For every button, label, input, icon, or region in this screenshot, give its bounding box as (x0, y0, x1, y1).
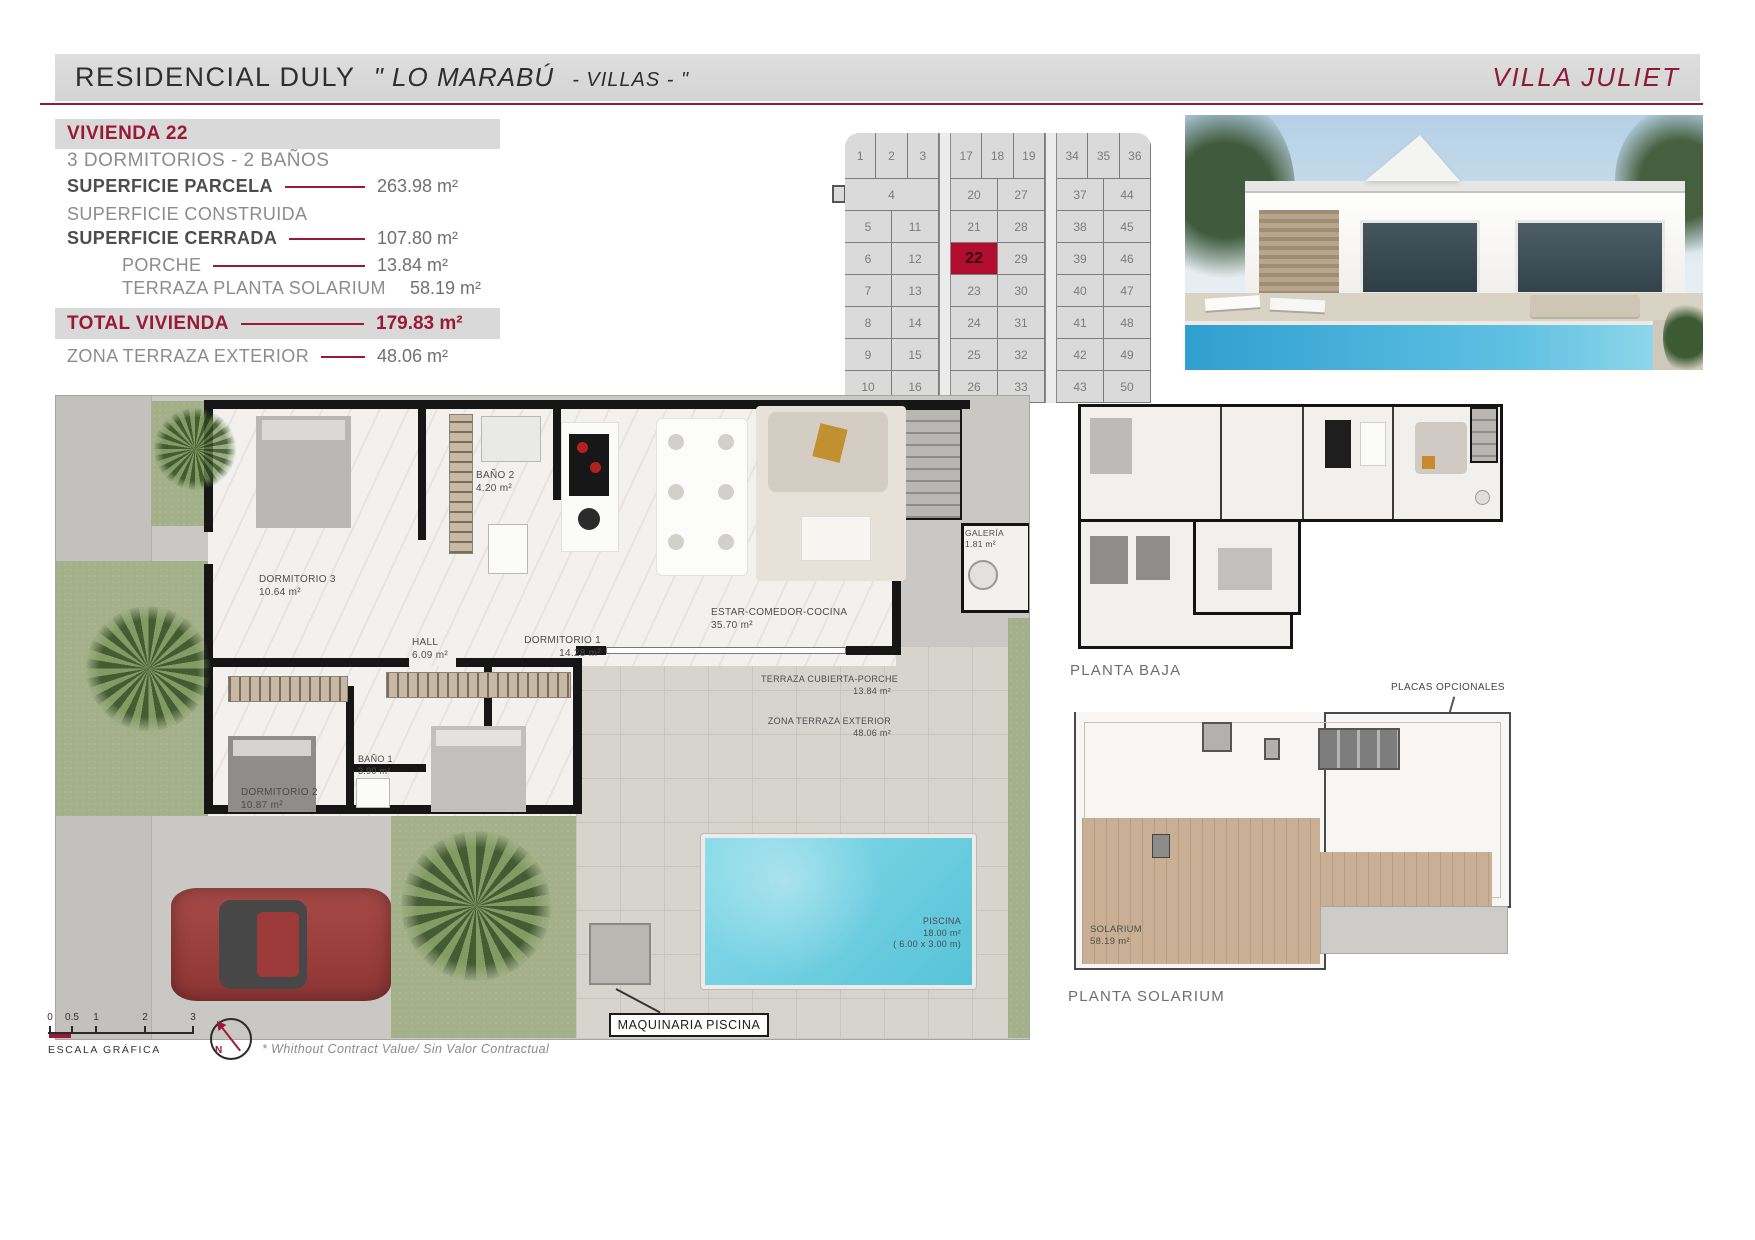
room-label-bano2: BAÑO 2 4.20 m² (476, 469, 514, 495)
spec-label: ZONA TERRAZA EXTERIOR (67, 346, 309, 367)
mini-bed (1218, 548, 1272, 590)
site-map-row: 2027 (951, 179, 1045, 211)
room-area: 18.00 m² (826, 928, 961, 940)
car-roof (257, 912, 299, 977)
leader-line (289, 238, 365, 240)
site-map-cell: 9 (845, 338, 892, 371)
solar-panels (1318, 728, 1400, 770)
scale-tick (144, 1026, 146, 1034)
site-map-cell: 49 (1103, 338, 1151, 371)
document-page: RESIDENCIAL DULY " LO MARABÚ - VILLAS - … (0, 0, 1755, 1240)
page-title: RESIDENCIAL DULY (75, 62, 356, 93)
spec-label: SUPERFICIE PARCELA (67, 176, 273, 197)
site-map-block: 12345116127138149151016 (845, 133, 939, 403)
wall-dorm2-bath1 (346, 686, 354, 814)
site-map-cell: 35 (1087, 133, 1119, 179)
spec-label: TERRAZA PLANTA SOLARIUM (122, 278, 386, 299)
site-map-cell: 4 (845, 178, 939, 211)
site-map-row: 2330 (951, 275, 1045, 307)
room-area: 6.09 m² (412, 649, 448, 662)
plate (718, 434, 734, 450)
site-map-row: 4249 (1057, 339, 1151, 371)
site-map-cell: 29 (997, 242, 1045, 275)
room-area: 48.06 m² (756, 728, 891, 740)
wardrobe-dormitorio2 (228, 676, 348, 702)
header-rule (40, 103, 1703, 105)
site-map-cell: 46 (1103, 242, 1151, 275)
mini-bed (1090, 536, 1128, 584)
room-label-terraza-porche: TERRAZA CUBIERTA-PORCHE 13.84 m² (761, 674, 891, 697)
site-map-cell: 36 (1119, 133, 1151, 179)
site-map-cell: 31 (997, 306, 1045, 339)
scale-tick-label: 2 (142, 1012, 148, 1023)
site-map-cell: 13 (891, 274, 939, 307)
site-map-row: 4148 (1057, 307, 1151, 339)
roof-hatch (1152, 834, 1170, 858)
room-area: 58.19 m² (1090, 936, 1142, 948)
vivienda-bar: VIVIENDA 22 (55, 119, 500, 149)
site-map-cell: 37 (1057, 178, 1104, 211)
site-map-cell: 28 (997, 210, 1045, 243)
site-map-cell: 34 (1057, 133, 1088, 179)
wall-wing-east (573, 658, 582, 814)
plate (718, 484, 734, 500)
villa-roof (1245, 181, 1685, 193)
total-row: TOTAL VIVIENDA 179.83 m² (67, 313, 488, 335)
mini-stairs (1470, 407, 1498, 463)
room-label-estar: ESTAR-COMEDOR-COCINA 35.70 m² (711, 606, 847, 632)
pool (701, 834, 976, 989)
spec-value: 13.84 m² (377, 255, 489, 276)
site-map-row: 2128 (951, 211, 1045, 243)
site-map-cell: 21 (951, 210, 998, 243)
room-name: ZONA TERRAZA EXTERIOR (768, 716, 891, 726)
compass: N (210, 1018, 252, 1060)
pool-equipment-pad (589, 923, 651, 985)
spec-row-construida: SUPERFICIE CONSTRUIDA (67, 204, 489, 225)
wall-west-mid (204, 564, 213, 624)
planta-baja-plan (1070, 398, 1515, 660)
room-area: 10.64 m² (259, 586, 336, 599)
pool-coping (1185, 321, 1655, 325)
spec-row-porche: PORCHE 13.84 m² (122, 255, 489, 276)
glass-window-left (1360, 220, 1480, 295)
outdoor-sofa (1530, 295, 1640, 317)
site-map-cell: 38 (1057, 210, 1104, 243)
leader-line (321, 356, 365, 358)
site-map-row: 2229 (951, 243, 1045, 275)
rooms-summary: 3 DORMITORIOS - 2 BAÑOS (67, 150, 329, 172)
site-map-cell: 42 (1057, 338, 1104, 371)
site-map-row: 2431 (951, 307, 1045, 339)
roof-vent (1264, 738, 1280, 760)
villa-name: VILLA JULIET (1492, 62, 1680, 93)
room-label-zona-terraza: ZONA TERRAZA EXTERIOR 48.06 m² (756, 716, 891, 739)
site-map-cell: 5 (845, 210, 892, 243)
room-label-dormitorio2: DORMITORIO 2 10.87 m² (241, 786, 318, 812)
maquinaria-label: MAQUINARIA PISCINA (618, 1018, 761, 1032)
spec-label: SUPERFICIE CERRADA (67, 228, 277, 249)
site-map-row: 4047 (1057, 275, 1151, 307)
spec-row-terraza-solarium: TERRAZA PLANTA SOLARIUM 58.19 m² (122, 278, 489, 299)
site-map-cell: 20 (951, 178, 998, 211)
exterior-stairs (904, 408, 962, 520)
bathroom1-sink (356, 778, 390, 808)
spec-value: 58.19 m² (410, 278, 489, 299)
scale-tick (95, 1026, 97, 1034)
maquinaria-label-box: MAQUINARIA PISCINA (609, 1013, 769, 1037)
contract-note: * Whithout Contract Value/ Sin Valor Con… (262, 1042, 549, 1056)
garden-strip-right (1008, 618, 1030, 1038)
site-map: 1234511612713814915101617181920272128222… (845, 133, 1157, 405)
room-name: DORMITORIO 3 (259, 574, 336, 585)
spec-value: 263.98 m² (377, 176, 489, 197)
glass-window-right (1515, 220, 1665, 295)
sliding-door (606, 647, 846, 654)
site-map-block: 3435363744384539464047414842494350 (1057, 133, 1151, 403)
mini-wall (1392, 407, 1394, 519)
leader-line (241, 323, 364, 325)
bathroom-sink (488, 524, 528, 574)
scale-red-segment (49, 1034, 71, 1038)
site-map-cell: 14 (891, 306, 939, 339)
site-map-cell-highlighted: 22 (951, 242, 998, 275)
header-left: RESIDENCIAL DULY " LO MARABÚ - VILLAS - … (75, 62, 689, 93)
room-area: 14.28 m² (471, 647, 601, 660)
scale-tick-label: 0.5 (65, 1012, 79, 1023)
site-map-cell: 32 (997, 338, 1045, 371)
planta-solarium-plan: SOLARIUM 58.19 m² (1068, 700, 1513, 980)
mini-wall (1220, 407, 1222, 519)
site-map-row: 3744 (1057, 179, 1151, 211)
site-map-cell: 6 (845, 242, 892, 275)
mini-washer (1475, 490, 1490, 505)
scale-bar: 0 0.5 1 2 3 (48, 1012, 208, 1046)
palm-tree (86, 606, 211, 731)
compass-north-label: N (215, 1045, 222, 1056)
burner (590, 462, 601, 473)
wardrobe-dormitorio3 (449, 414, 473, 554)
pan (578, 508, 600, 530)
planta-baja-caption: PLANTA BAJA (1070, 662, 1181, 679)
spec-label: SUPERFICIE CONSTRUIDA (67, 204, 307, 225)
site-map-cell: 48 (1103, 306, 1151, 339)
spec-value: 48.06 m² (377, 346, 489, 367)
spec-row-parcela: SUPERFICIE PARCELA 263.98 m² (67, 176, 489, 197)
room-area: 4.20 m² (476, 482, 514, 495)
leader-line (213, 265, 365, 267)
scale-tick-label: 1 (93, 1012, 99, 1023)
site-map-cell: 25 (951, 338, 998, 371)
bed-pillow (262, 420, 345, 440)
site-map-road (1045, 133, 1057, 403)
site-map-cell: 3 (907, 133, 939, 179)
site-map-row: 915 (845, 339, 939, 371)
mini-bed (1090, 418, 1132, 474)
room-area: 35.70 m² (711, 619, 847, 632)
site-map-cell: 40 (1057, 274, 1104, 307)
room-area: 3.90 m² (358, 766, 393, 778)
plate (668, 484, 684, 500)
room-label-hall: HALL 6.09 m² (412, 636, 448, 662)
site-map-cell: 44 (1103, 178, 1151, 211)
solarium-deck-extension (1320, 852, 1492, 906)
site-map-cell: 8 (845, 306, 892, 339)
room-area: 10.87 m² (241, 799, 318, 812)
site-map-row: 2532 (951, 339, 1045, 371)
site-map-cell: 12 (891, 242, 939, 275)
palm-tree (154, 408, 236, 490)
site-map-cell: 2 (875, 133, 907, 179)
site-map-row: 612 (845, 243, 939, 275)
site-map-row: 814 (845, 307, 939, 339)
room-area: 1.81 m² (965, 539, 1004, 550)
villa-photo (1185, 115, 1703, 370)
scale-tick (71, 1026, 73, 1034)
site-map-block: 1718192027212822292330243125322633 (951, 133, 1045, 403)
room-name: DORMITORIO 1 (524, 635, 601, 646)
bed-pillow (233, 740, 311, 756)
plant-leaves (1663, 300, 1703, 370)
plate (668, 434, 684, 450)
project-name: " LO MARABÚ (374, 62, 555, 93)
room-name: BAÑO 1 (358, 754, 393, 764)
site-map-row: 3845 (1057, 211, 1151, 243)
room-dims: ( 6.00 x 3.00 m) (826, 939, 961, 951)
site-map-road (939, 133, 951, 403)
site-map-cell: 45 (1103, 210, 1151, 243)
site-map-row: 713 (845, 275, 939, 307)
room-label-bano1: BAÑO 1 3.90 m² (358, 754, 393, 777)
scale-tick (49, 1026, 51, 1034)
spec-row-cerrada: SUPERFICIE CERRADA 107.80 m² (67, 228, 489, 249)
mini-wall (1302, 407, 1304, 519)
scale-tick (192, 1026, 194, 1034)
site-map-cell: 47 (1103, 274, 1151, 307)
site-map-cell: 39 (1057, 242, 1104, 275)
gray-terrace-band (1320, 906, 1508, 954)
site-map-row: 4 (845, 179, 939, 211)
escala-grafica-label: ESCALA GRÁFICA (48, 1044, 161, 1056)
room-label-galeria: GALERÍA 1.81 m² (965, 528, 1004, 550)
room-name: ESTAR-COMEDOR-COCINA (711, 607, 847, 618)
spec-value: 107.80 m² (377, 228, 489, 249)
swimming-pool (1185, 323, 1655, 370)
burner (577, 442, 588, 453)
vivienda-label: VIVIENDA 22 (67, 123, 188, 145)
room-label-dormitorio3: DORMITORIO 3 10.64 m² (259, 573, 336, 599)
leader-line (285, 186, 365, 188)
planta-solarium-caption: PLANTA SOLARIUM (1068, 988, 1225, 1005)
site-map-cell: 27 (997, 178, 1045, 211)
solarium-label: SOLARIUM 58.19 m² (1090, 924, 1142, 949)
spec-row-zona-terraza: ZONA TERRAZA EXTERIOR 48.06 m² (67, 346, 489, 367)
wardrobe-dormitorio1 (386, 672, 571, 698)
wall-bath-kitchen (553, 400, 561, 500)
spec-label: PORCHE (122, 255, 201, 276)
cooktop (569, 434, 609, 496)
room-name: GALERÍA (965, 528, 1004, 538)
site-map-cell: 19 (1013, 133, 1045, 179)
car (171, 888, 391, 1001)
room-label-dormitorio1: DORMITORIO 1 14.28 m² (471, 634, 601, 660)
compass-needle-icon (221, 1027, 241, 1052)
mini-bed (1136, 536, 1170, 580)
site-map-cell: 18 (981, 133, 1013, 179)
washing-machine (968, 560, 998, 590)
site-map-entrance-notch (832, 185, 846, 203)
site-map-cell: 17 (951, 133, 982, 179)
plate (668, 534, 684, 550)
scale-tick-label: 3 (190, 1012, 196, 1023)
site-map-row: 123 (845, 133, 939, 179)
total-label: TOTAL VIVIENDA (67, 313, 229, 335)
project-name-suffix: - VILLAS - " (572, 69, 689, 92)
mini-dining-table (1360, 422, 1386, 466)
room-area: 13.84 m² (761, 686, 891, 698)
room-name: TERRAZA CUBIERTA-PORCHE (761, 674, 898, 684)
room-name: PISCINA (923, 916, 961, 926)
mini-armchair (1422, 456, 1435, 469)
header-bar: RESIDENCIAL DULY " LO MARABÚ - VILLAS - … (55, 54, 1700, 101)
plate (718, 534, 734, 550)
site-map-cell: 15 (891, 338, 939, 371)
room-name: SOLARIUM (1090, 924, 1142, 935)
site-map-row: 3946 (1057, 243, 1151, 275)
site-map-cell: 11 (891, 210, 939, 243)
coffee-table (801, 516, 871, 561)
room-name: HALL (412, 637, 438, 648)
room-name: BAÑO 2 (476, 470, 514, 481)
room-name: DORMITORIO 2 (241, 787, 318, 798)
stone-wall (1259, 210, 1339, 295)
site-map-cell: 7 (845, 274, 892, 307)
main-floor-plan: MAQUINARIA PISCINA DORMITORIO 3 10.64 m²… (55, 395, 1030, 1040)
bed-pillow (436, 730, 521, 746)
site-map-cell: 24 (951, 306, 998, 339)
wall-hall-top (204, 658, 409, 667)
site-map-cell: 30 (997, 274, 1045, 307)
roof-skylight (1202, 722, 1232, 752)
site-map-cell: 41 (1057, 306, 1104, 339)
placas-opcionales-label: PLACAS OPCIONALES (1390, 682, 1505, 693)
room-label-piscina: PISCINA 18.00 m² ( 6.00 x 3.00 m) (826, 916, 961, 951)
mini-kitchen-island (1325, 420, 1351, 468)
site-map-row: 343536 (1057, 133, 1151, 179)
scale-tick-label: 0 (47, 1012, 53, 1023)
site-map-row: 171819 (951, 133, 1045, 179)
site-map-cell: 1 (845, 133, 876, 179)
total-bar: TOTAL VIVIENDA 179.83 m² (55, 308, 500, 339)
wall-dorm3-bath (418, 400, 426, 540)
wall-porch-right (846, 646, 901, 655)
roof-sail-shade (1365, 135, 1460, 181)
total-value: 179.83 m² (376, 313, 488, 335)
shower (481, 416, 541, 462)
site-map-row: 511 (845, 211, 939, 243)
site-map-cell: 23 (951, 274, 998, 307)
palm-tree (401, 831, 551, 981)
